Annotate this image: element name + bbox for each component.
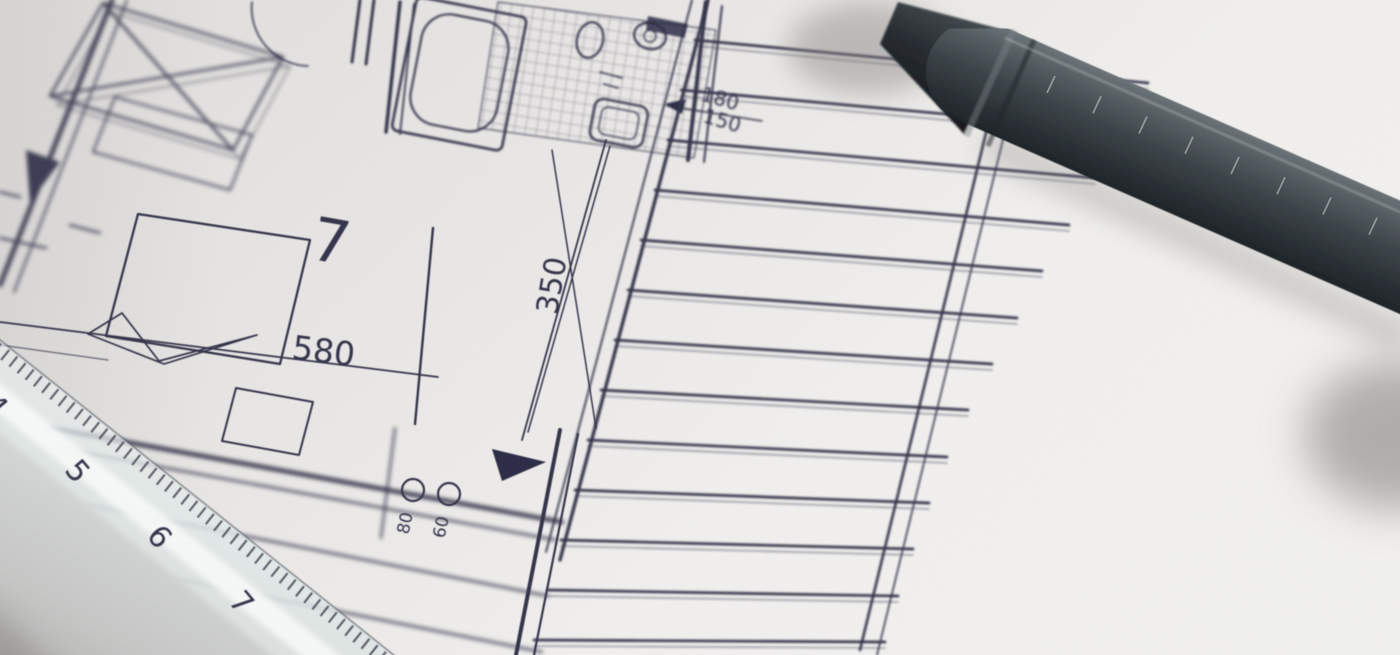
photo-floor-plan-scene: 180 150 7 580 80 60 350 (0, 0, 1400, 655)
photo-grain-overlay (0, 0, 1400, 655)
